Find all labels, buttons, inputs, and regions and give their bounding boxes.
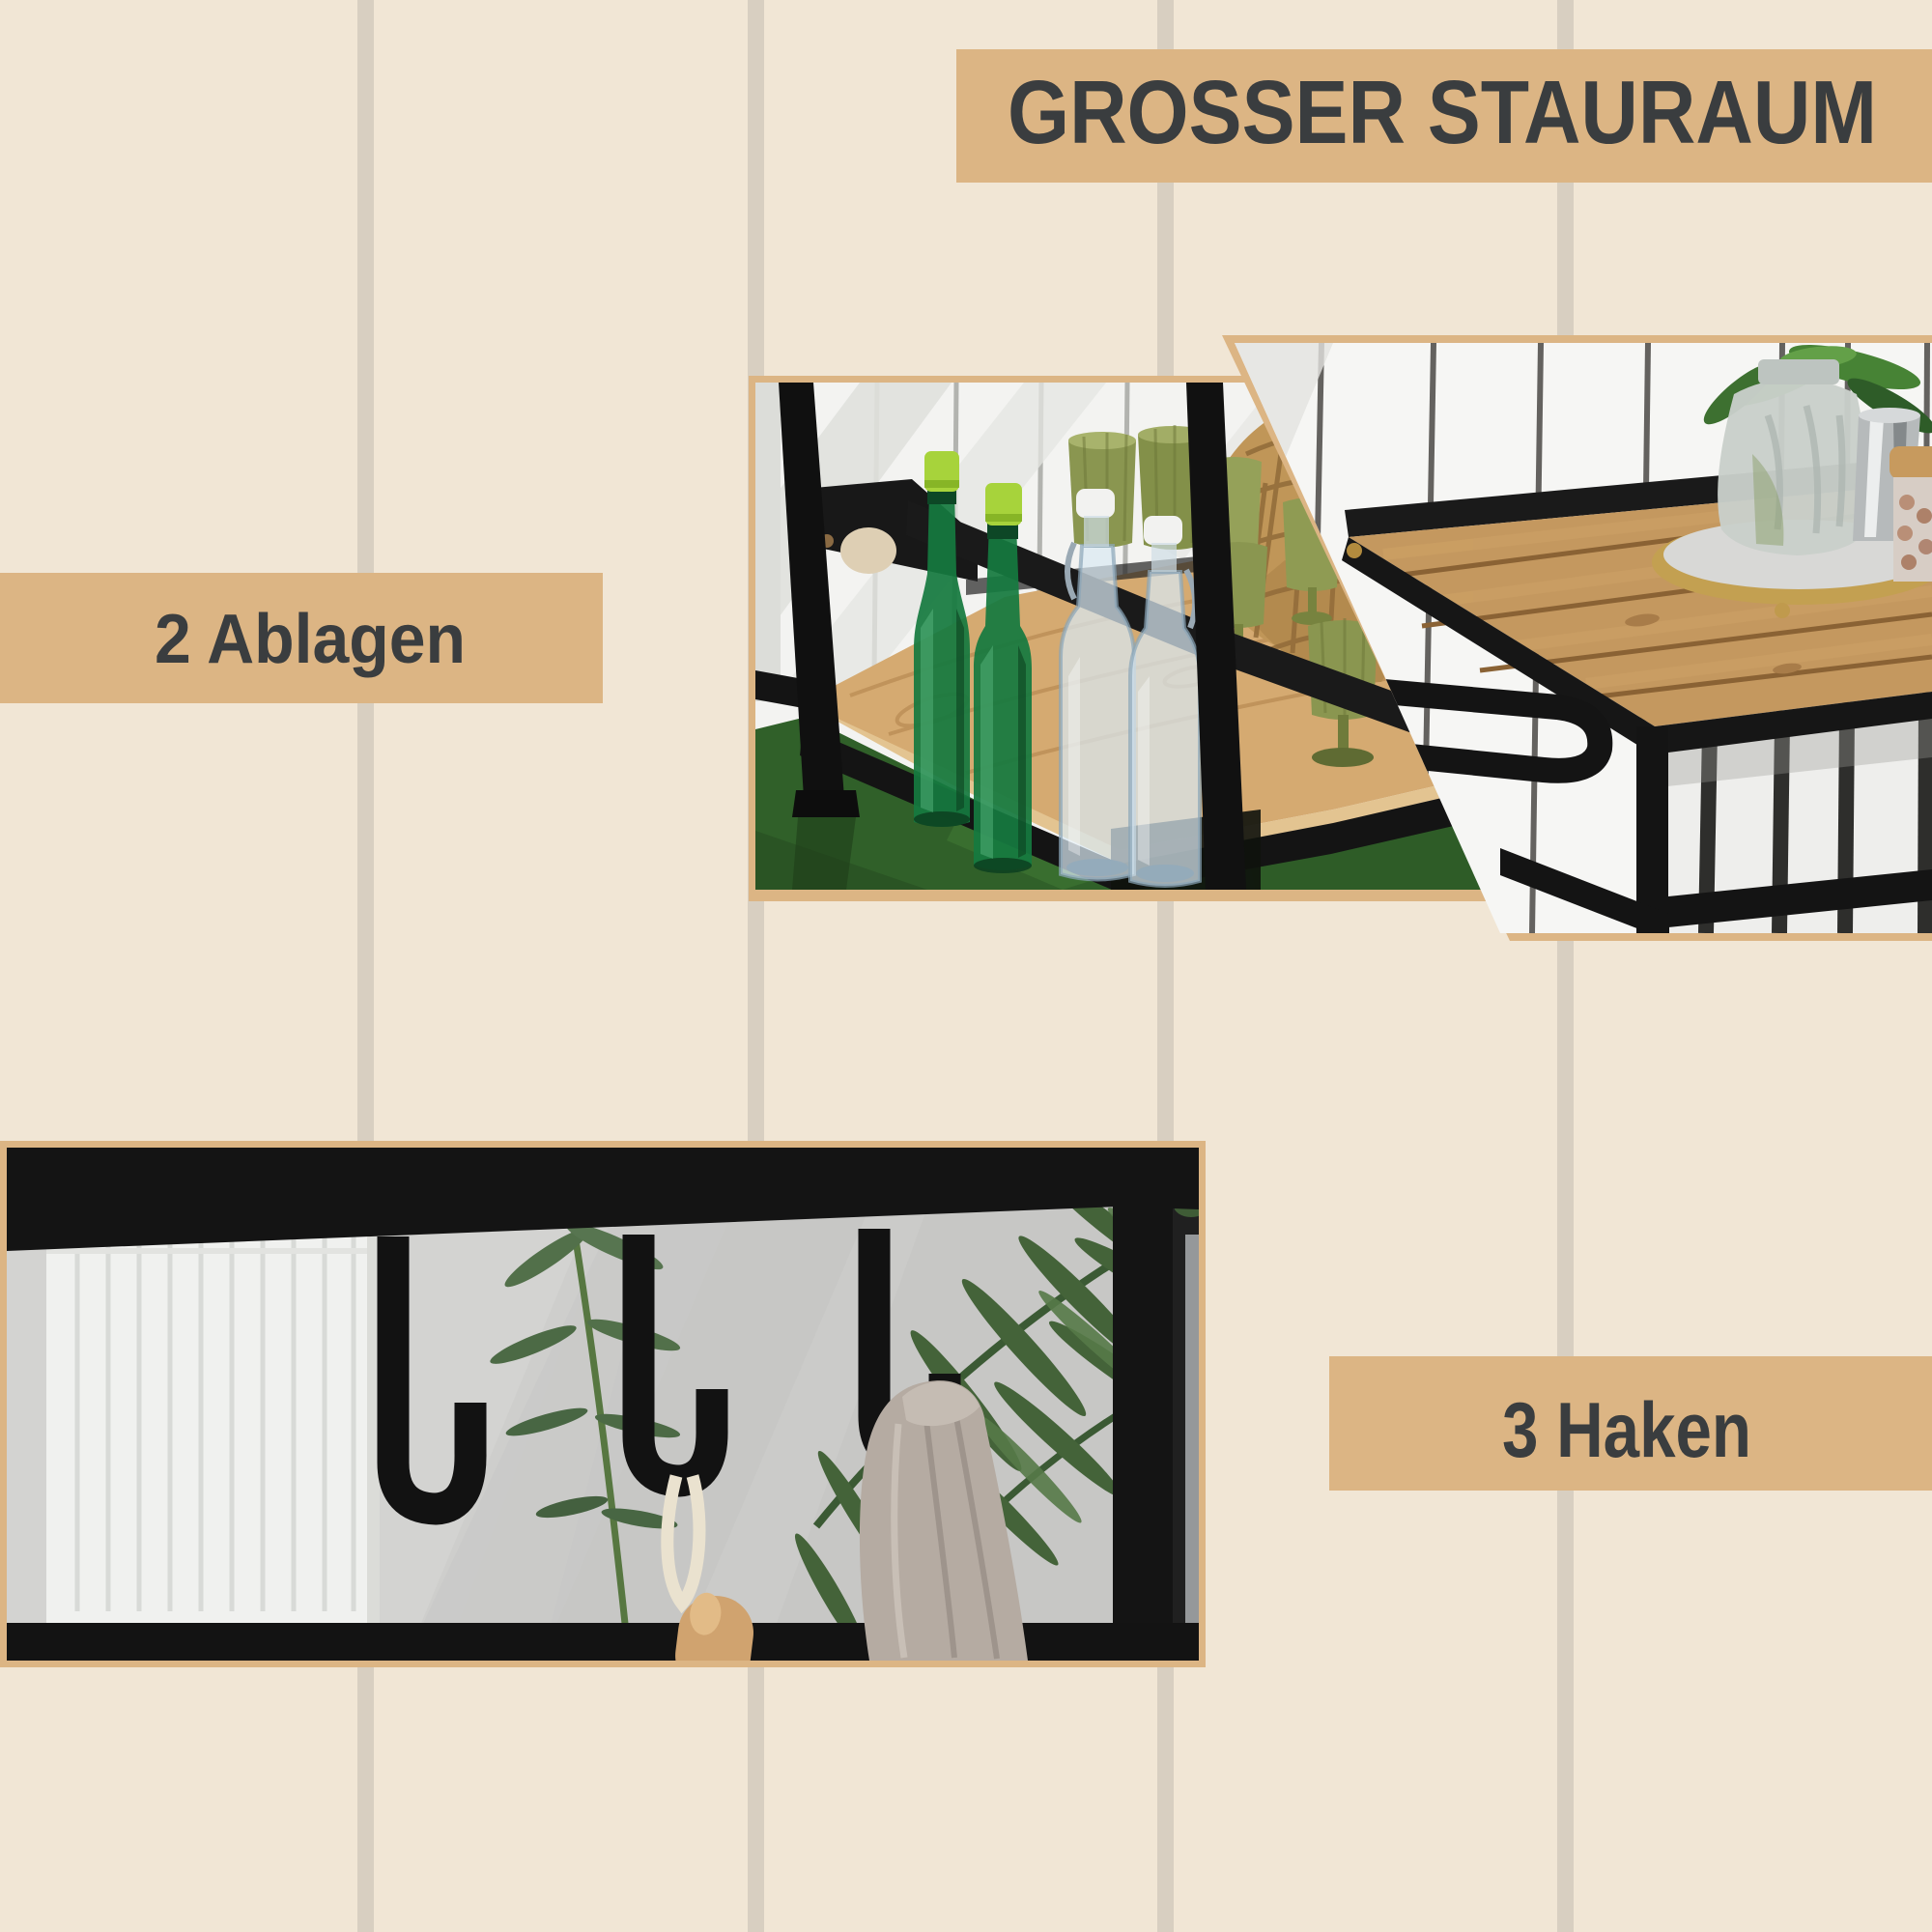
svg-text:2 Ablagen: 2 Ablagen: [155, 601, 466, 678]
svg-text:3 Haken: 3 Haken: [1502, 1387, 1751, 1474]
svg-text:GROSSER STAURAUM: GROSSER STAURAUM: [1008, 62, 1877, 162]
